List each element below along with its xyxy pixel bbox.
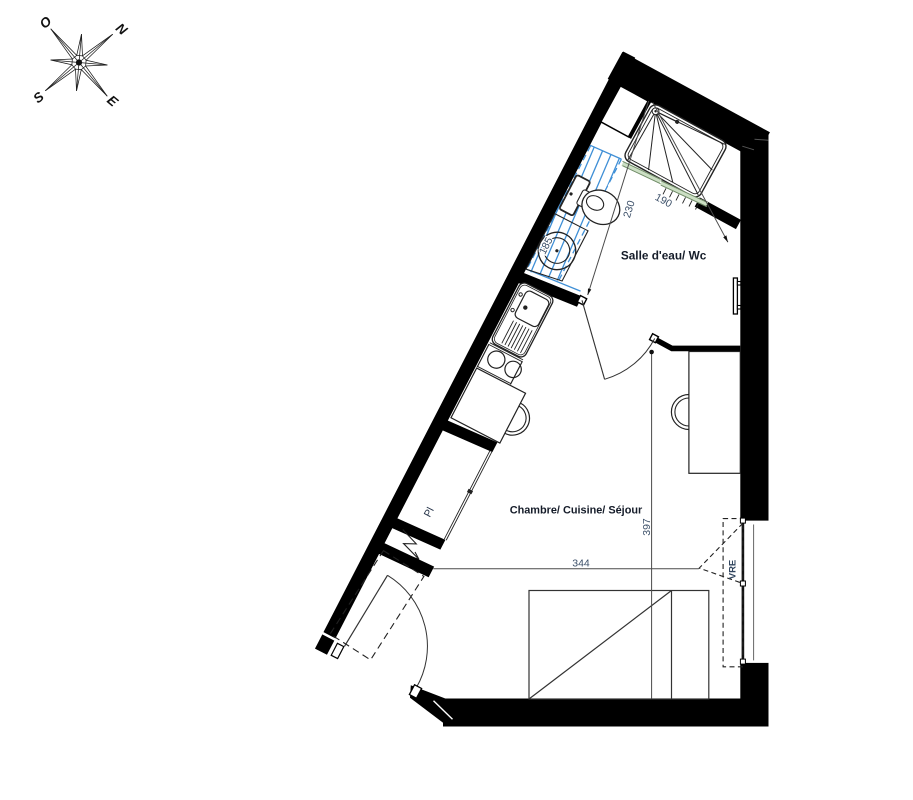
svg-text:397: 397 (641, 518, 653, 536)
svg-text:Pl: Pl (422, 505, 437, 519)
svg-text:Salle d'eau/ Wc: Salle d'eau/ Wc (621, 249, 707, 263)
svg-text:344: 344 (572, 558, 590, 570)
svg-text:230: 230 (621, 199, 638, 219)
svg-text:N: N (113, 20, 130, 38)
svg-text:O: O (37, 13, 55, 32)
svg-text:Chambre/ Cuisine/ Séjour: Chambre/ Cuisine/ Séjour (510, 504, 643, 516)
svg-text:VRE: VRE (727, 560, 738, 580)
svg-text:S: S (30, 89, 47, 106)
